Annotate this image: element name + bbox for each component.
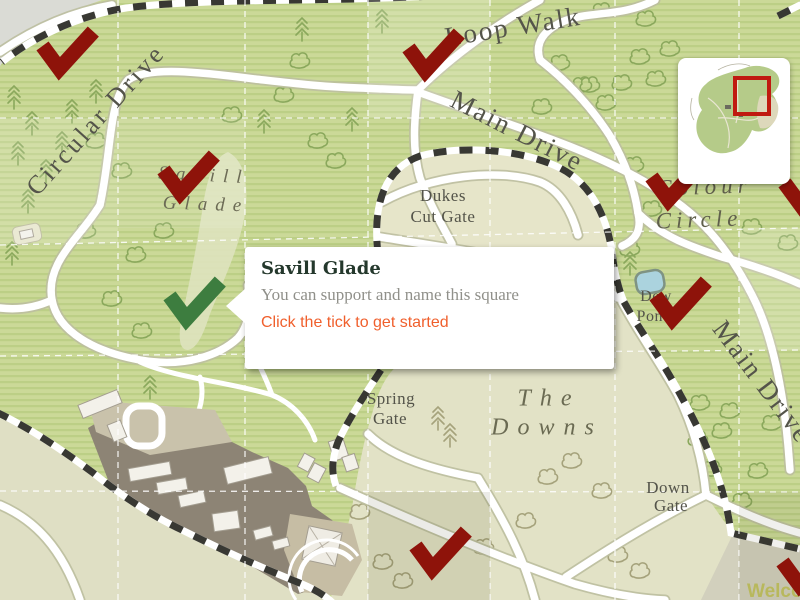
- popup-message: You can support and name this square: [261, 285, 598, 305]
- park-map[interactable]: Circular Drive Loop Walk Main Drive Main…: [0, 0, 800, 600]
- minimap-viewport-indicator[interactable]: [733, 76, 771, 116]
- square-info-popup: Savill Glade You can support and name th…: [245, 247, 614, 369]
- popup-title: Savill Glade: [261, 258, 598, 279]
- popup-arrow: [226, 288, 246, 324]
- popup-cta-link[interactable]: Click the tick to get started: [261, 314, 449, 332]
- dew-pond: [634, 269, 665, 296]
- minimap[interactable]: [678, 58, 790, 184]
